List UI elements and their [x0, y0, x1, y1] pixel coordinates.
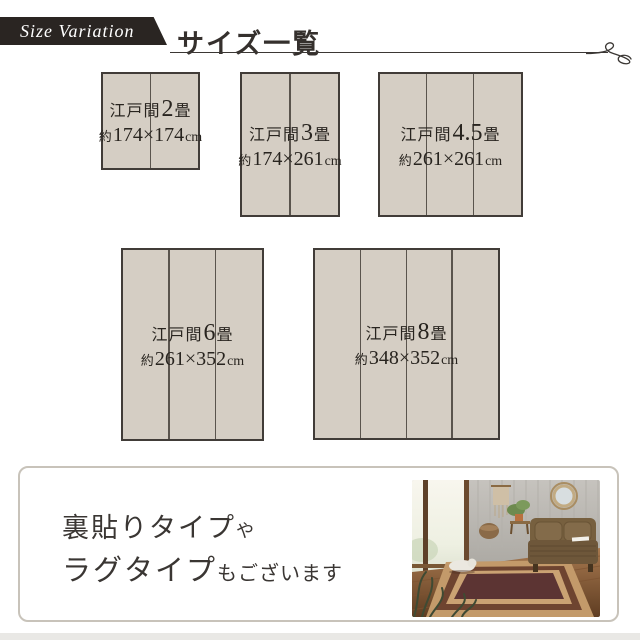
title-underline — [170, 52, 608, 53]
dim-approx-label: 約 — [355, 352, 368, 367]
size-name-prefix: 江戸間 — [249, 127, 300, 144]
dim-unit: cm — [485, 154, 502, 169]
size-name-number: 6 — [204, 320, 216, 346]
dim-unit: cm — [227, 354, 244, 369]
dim-approx-label: 約 — [238, 153, 251, 168]
size-name-prefix: 江戸間 — [151, 327, 202, 344]
size-name-number: 2 — [162, 96, 174, 122]
dim-approx-label: 約 — [399, 153, 412, 168]
size-label: 江戸間8畳 約348×352cm — [355, 320, 458, 368]
dim-value: 174×261 — [252, 148, 323, 170]
size-name-prefix: 江戸間 — [109, 103, 160, 120]
size-name-suffix: 畳 — [175, 103, 192, 120]
size-card-edoma-2jo: 江戸間2畳 約174×174cm — [101, 72, 200, 170]
size-label: 江戸間2畳 約174×174cm — [99, 97, 202, 145]
size-card-edoma-8jo: 江戸間8畳 約348×352cm — [313, 248, 500, 440]
dim-unit: cm — [441, 353, 458, 368]
photo-basket — [479, 523, 499, 539]
other-types-note-box: 裏貼りタイプや ラグタイプもございます — [18, 466, 619, 622]
size-name: 江戸間3畳 — [238, 121, 341, 145]
note-line2-main: ラグタイプ — [62, 555, 217, 587]
photo-mirror — [551, 483, 577, 509]
ribbon-label: Size Variation — [0, 21, 135, 42]
size-name-prefix: 江戸間 — [400, 127, 451, 144]
size-name-number: 4.5 — [453, 120, 483, 146]
size-name-prefix: 江戸間 — [365, 326, 416, 343]
size-card-edoma-6jo: 江戸間6畳 約261×352cm — [121, 248, 264, 441]
size-name-suffix: 畳 — [314, 127, 331, 144]
dim-unit: cm — [325, 154, 342, 169]
size-name: 江戸間4.5畳 — [399, 121, 502, 145]
size-name-number: 8 — [418, 319, 430, 345]
dim-approx-label: 約 — [141, 353, 154, 368]
dim-approx-label: 約 — [99, 129, 112, 144]
note-line-1: 裏貼りタイプや — [62, 508, 343, 551]
size-name-suffix: 畳 — [431, 326, 448, 343]
note-line2-small: もございます — [217, 563, 343, 585]
size-dimensions: 約348×352cm — [355, 348, 458, 368]
size-name: 江戸間2畳 — [99, 97, 202, 121]
size-card-edoma-4-5jo: 江戸間4.5畳 約261×261cm — [378, 72, 523, 217]
page-title: サイズ一覧 — [177, 22, 321, 61]
size-card-edoma-3jo: 江戸間3畳 約174×261cm — [240, 72, 340, 217]
size-label: 江戸間4.5畳 約261×261cm — [399, 121, 502, 169]
section-divider-strip — [0, 633, 640, 640]
note-text: 裏貼りタイプや ラグタイプもございます — [62, 508, 343, 594]
note-line-2: ラグタイプもございます — [62, 551, 343, 594]
size-name: 江戸間8畳 — [355, 320, 458, 344]
size-name-number: 3 — [301, 120, 313, 146]
size-label: 江戸間3畳 約174×261cm — [238, 121, 341, 169]
dim-value: 174×174 — [113, 124, 184, 146]
size-name-suffix: 畳 — [217, 327, 234, 344]
flourish-icon — [586, 41, 632, 65]
size-dimensions: 約174×174cm — [99, 125, 202, 145]
size-label: 江戸間6畳 約261×352cm — [141, 321, 244, 369]
photo-sofa — [528, 518, 598, 572]
dim-value: 348×352 — [369, 347, 440, 369]
size-variation-ribbon: Size Variation — [0, 17, 167, 45]
room-photo — [412, 480, 600, 617]
size-name-suffix: 畳 — [484, 127, 501, 144]
note-line1-main: 裏貼りタイプ — [62, 513, 236, 543]
note-line1-small: や — [236, 521, 256, 541]
size-dimensions: 約261×352cm — [141, 349, 244, 369]
dim-value: 261×352 — [155, 348, 226, 370]
size-dimensions: 約261×261cm — [399, 149, 502, 169]
size-dimensions: 約174×261cm — [238, 149, 341, 169]
dim-value: 261×261 — [413, 148, 484, 170]
size-name: 江戸間6畳 — [141, 321, 244, 345]
dim-unit: cm — [185, 130, 202, 145]
